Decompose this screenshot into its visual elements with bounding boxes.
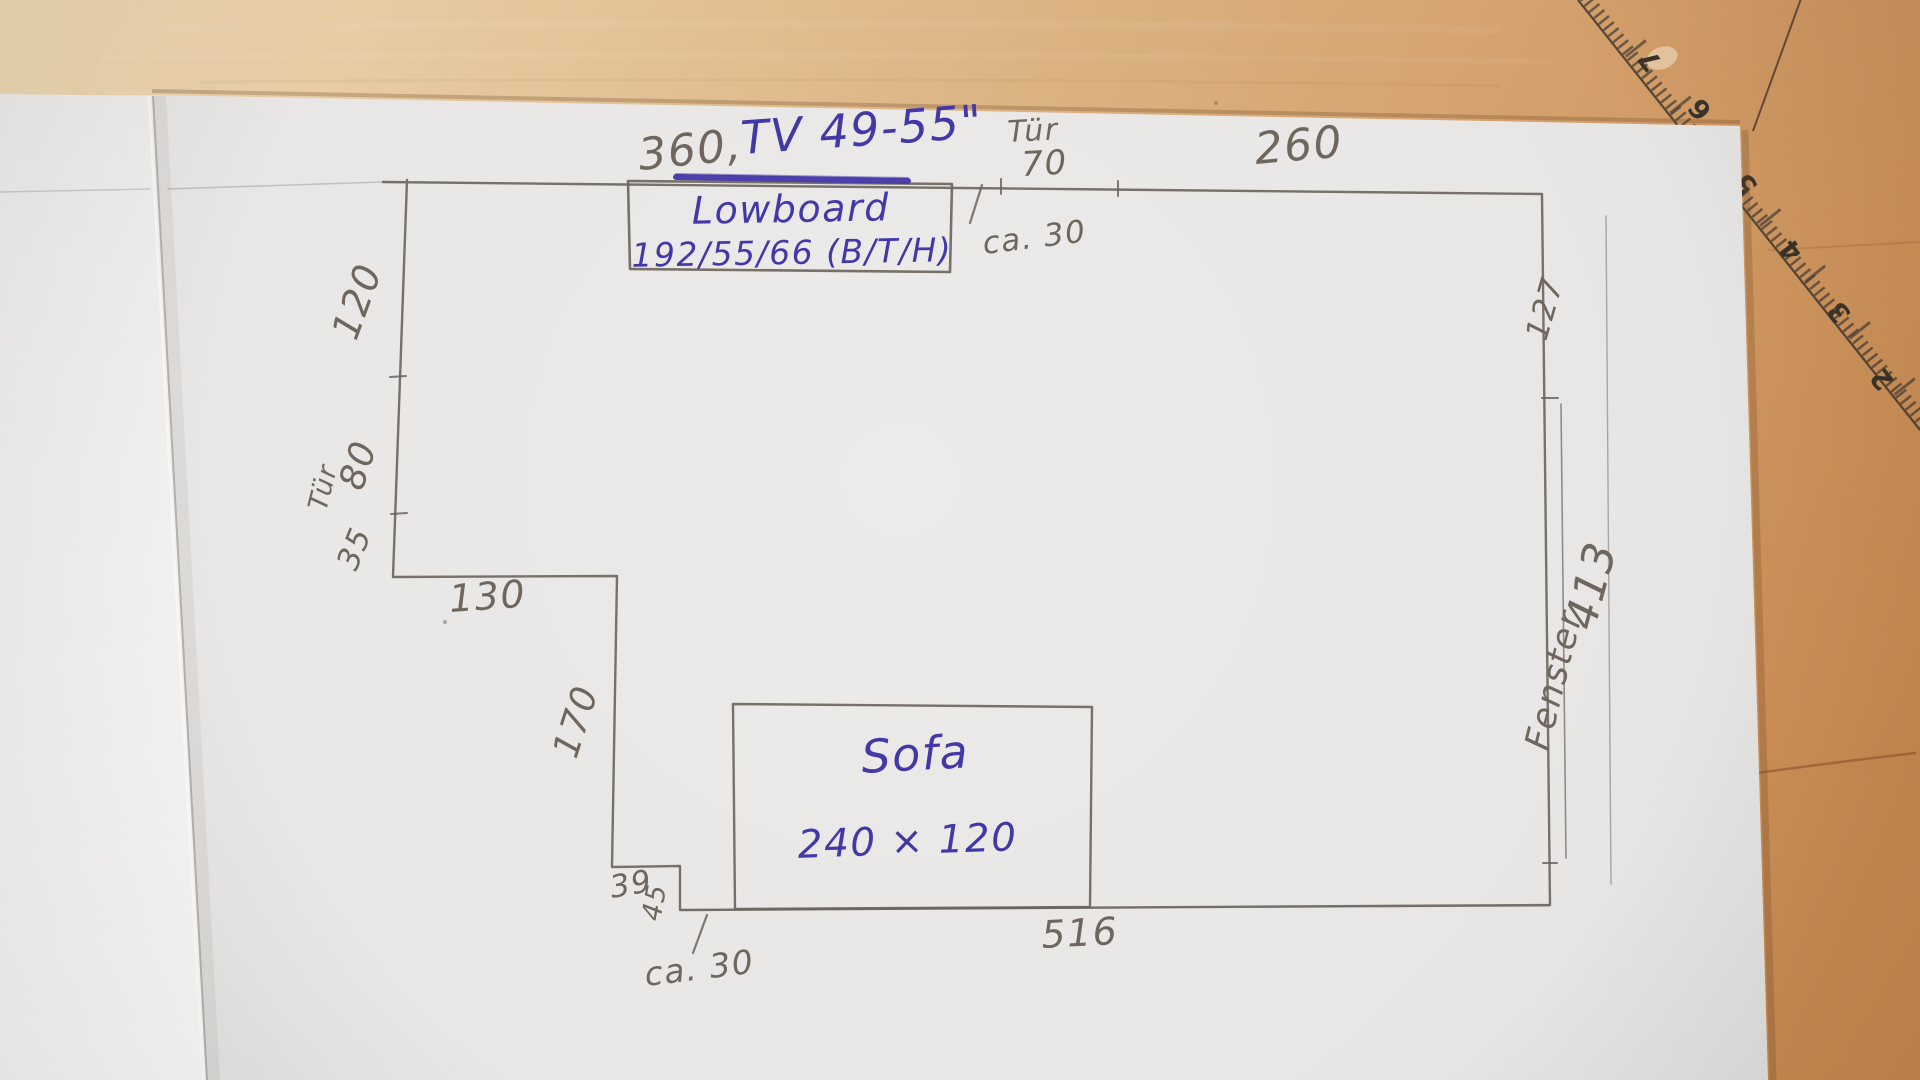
vignette — [0, 0, 1920, 1080]
floorplan-photo: 7 6 5 4 3 2 — [0, 0, 1920, 1080]
